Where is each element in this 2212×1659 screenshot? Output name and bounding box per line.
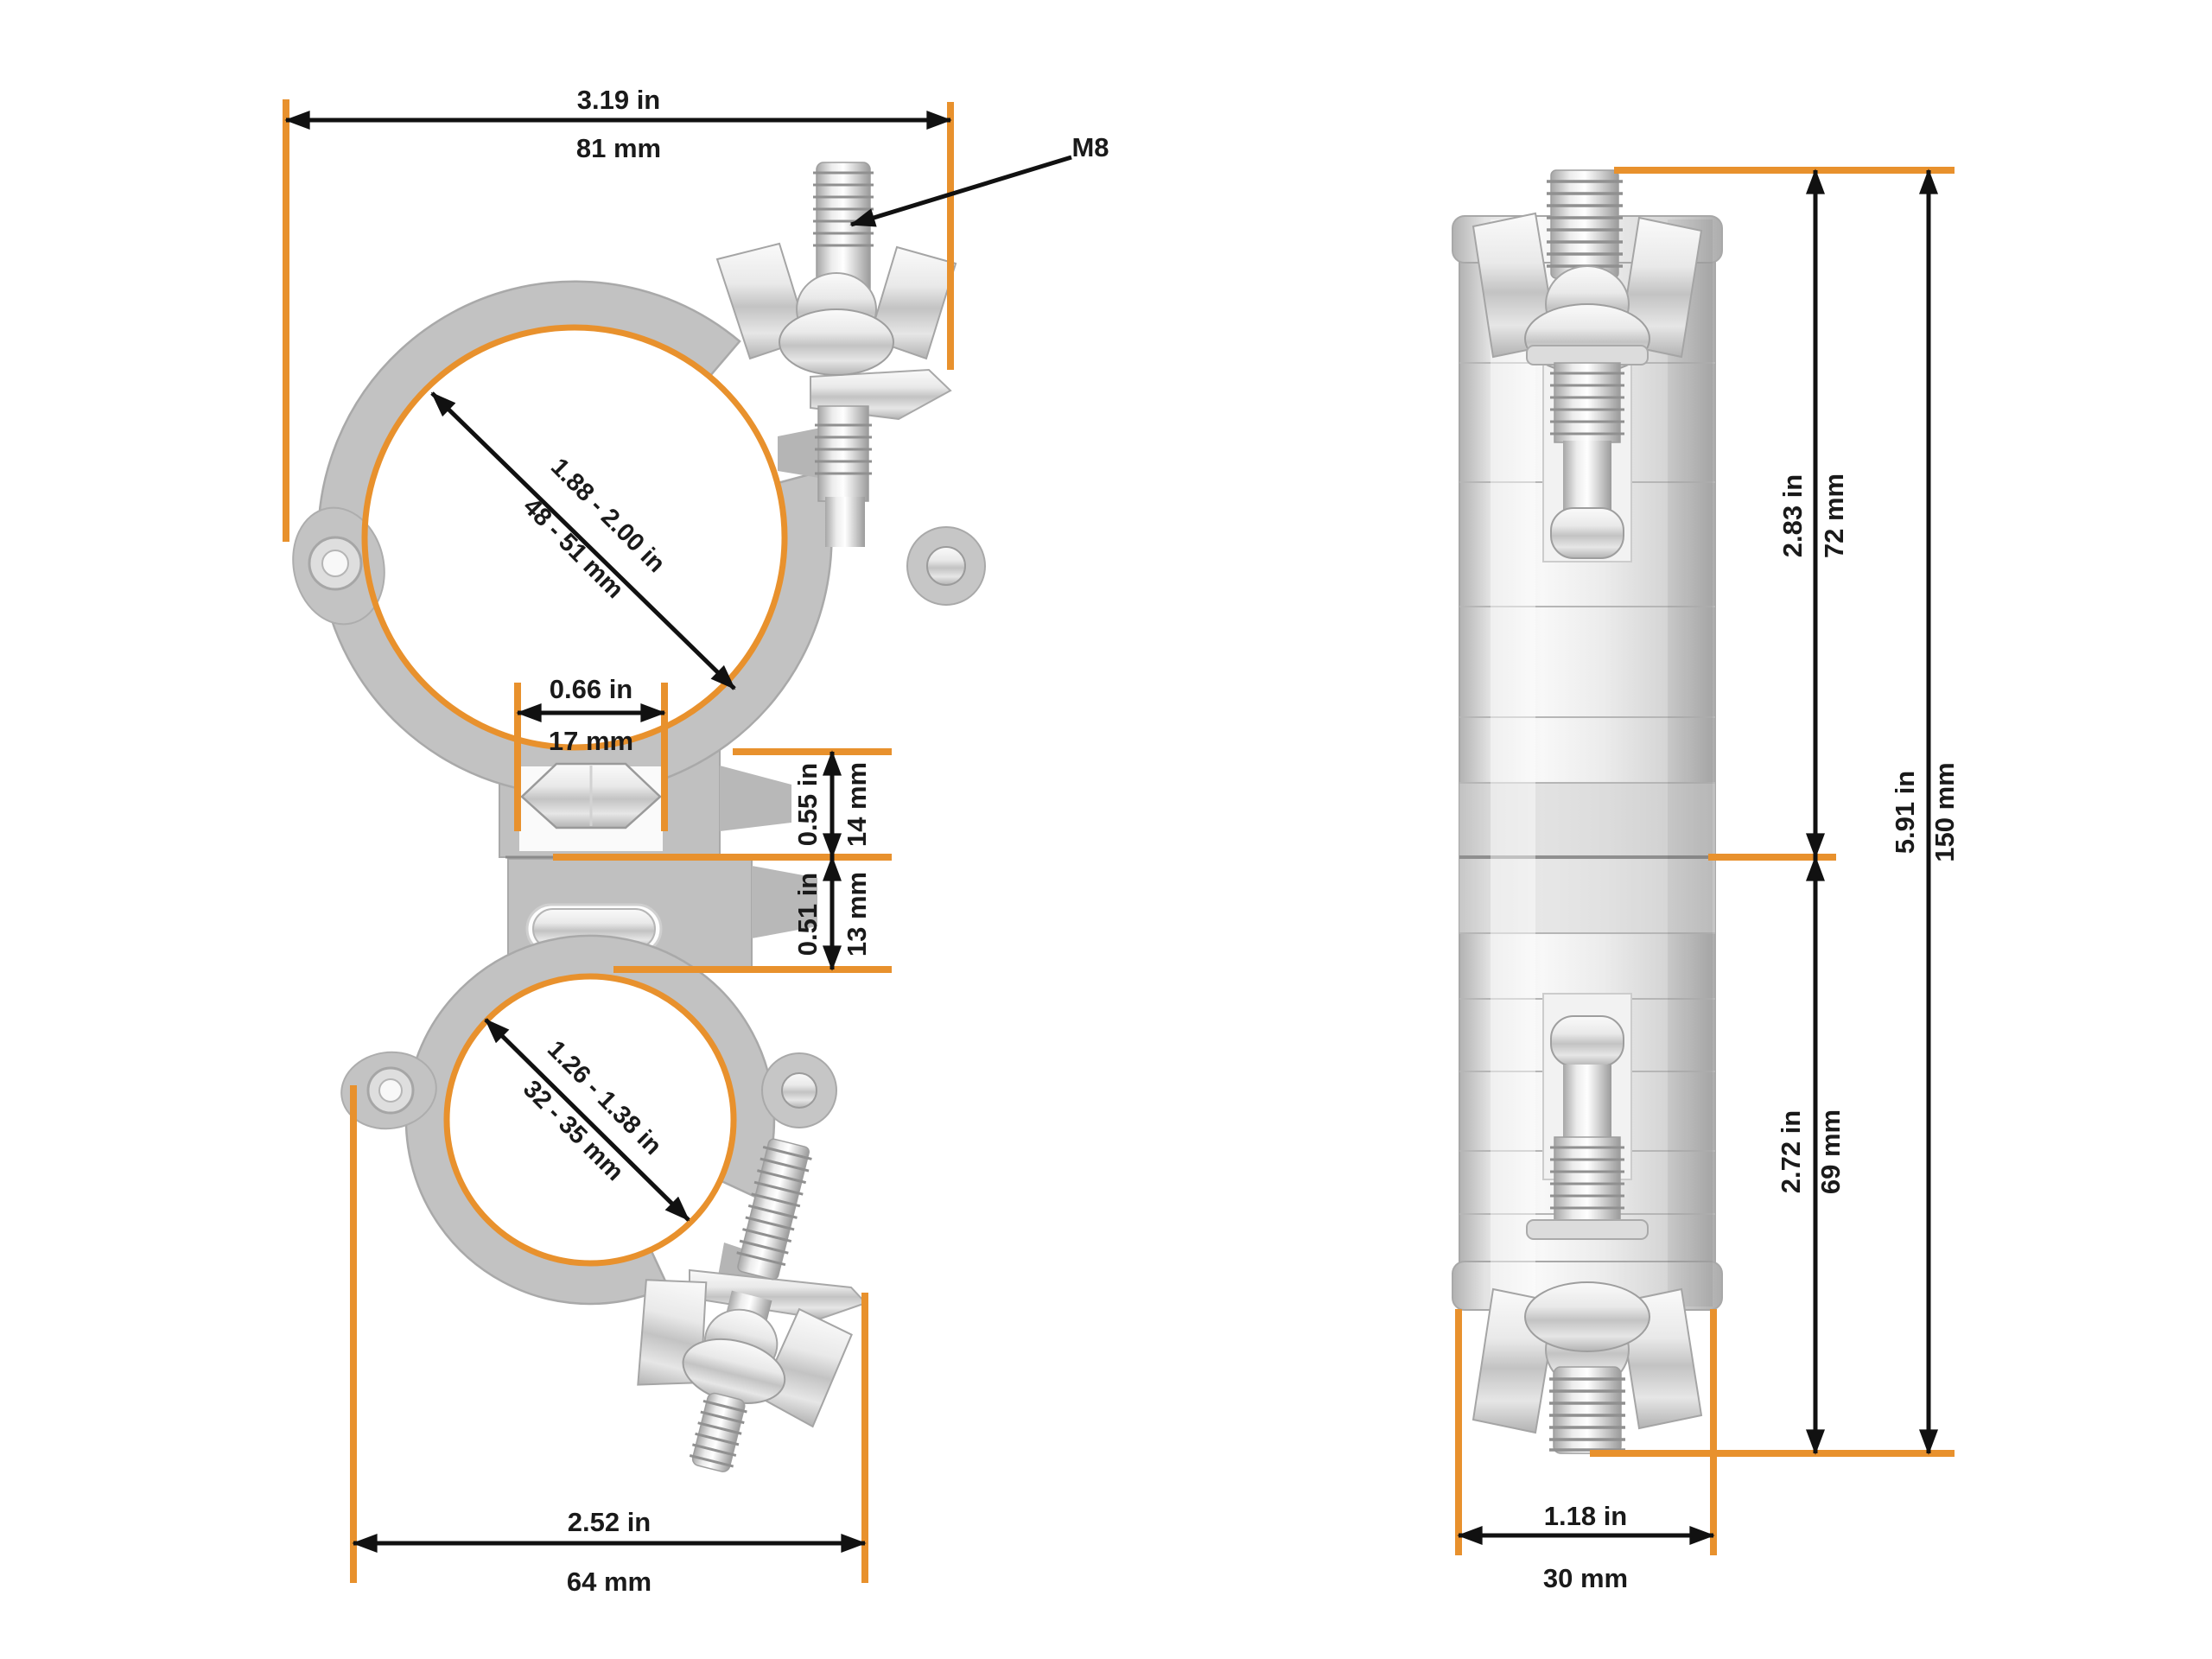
label-front-bottom-width-in: 2.52 in: [568, 1507, 652, 1537]
side-body-shade: [1668, 219, 1713, 1306]
label-upper-swivel-in: 0.55 in: [792, 763, 823, 847]
label-front-bottom-width-mm: 64 mm: [567, 1567, 652, 1597]
dimension-drawing-page: 3.19 in 81 mm M8 1.88 - 2.00 in 48 - 51 …: [0, 0, 2212, 1659]
label-lower-swivel-mm: 13 mm: [842, 872, 872, 957]
label-bolt-m8: M8: [1071, 132, 1109, 162]
top-right-hinge-pin: [927, 547, 965, 585]
front-view-clamp: [283, 162, 985, 1494]
top-left-lug-hole: [322, 550, 348, 576]
label-side-overall-in: 5.91 in: [1890, 771, 1920, 855]
upper-swivel-arm: [720, 766, 791, 831]
label-side-upper-in: 2.83 in: [1777, 474, 1808, 558]
label-side-width-in: 1.18 in: [1544, 1501, 1628, 1531]
label-side-overall-mm: 150 mm: [1929, 762, 1960, 861]
label-nut-width-mm: 17 mm: [549, 726, 633, 756]
label-lower-swivel-in: 0.51 in: [792, 873, 823, 957]
top-wing-bolt: [717, 162, 956, 547]
label-side-lower-in: 2.72 in: [1776, 1110, 1806, 1194]
side-top-barrel: [1551, 508, 1624, 558]
side-body-highlight: [1491, 219, 1535, 1306]
label-front-top-width-in: 3.19 in: [577, 85, 661, 115]
top-bolt-threads: [813, 173, 874, 245]
dimline-bottom-pipe-diameter: [486, 1020, 689, 1220]
label-side-width-mm: 30 mm: [1543, 1563, 1628, 1593]
bottom-right-hinge-pin: [782, 1073, 817, 1108]
label-front-top-width-mm: 81 mm: [576, 133, 661, 163]
side-bottom-barrel: [1551, 1016, 1624, 1066]
label-upper-swivel-mm: 14 mm: [842, 762, 872, 847]
leader-m8: [851, 157, 1071, 225]
clamp-technical-drawing: 3.19 in 81 mm M8 1.88 - 2.00 in 48 - 51 …: [0, 0, 2212, 1659]
bottom-left-lug-hole: [379, 1079, 402, 1102]
label-top-pipe-in: 1.88 - 2.00 in: [545, 453, 671, 578]
label-side-lower-mm: 69 mm: [1815, 1109, 1846, 1194]
label-side-upper-mm: 72 mm: [1819, 474, 1849, 558]
label-nut-width-in: 0.66 in: [550, 674, 633, 704]
side-view-clamp: [1452, 170, 1722, 1453]
